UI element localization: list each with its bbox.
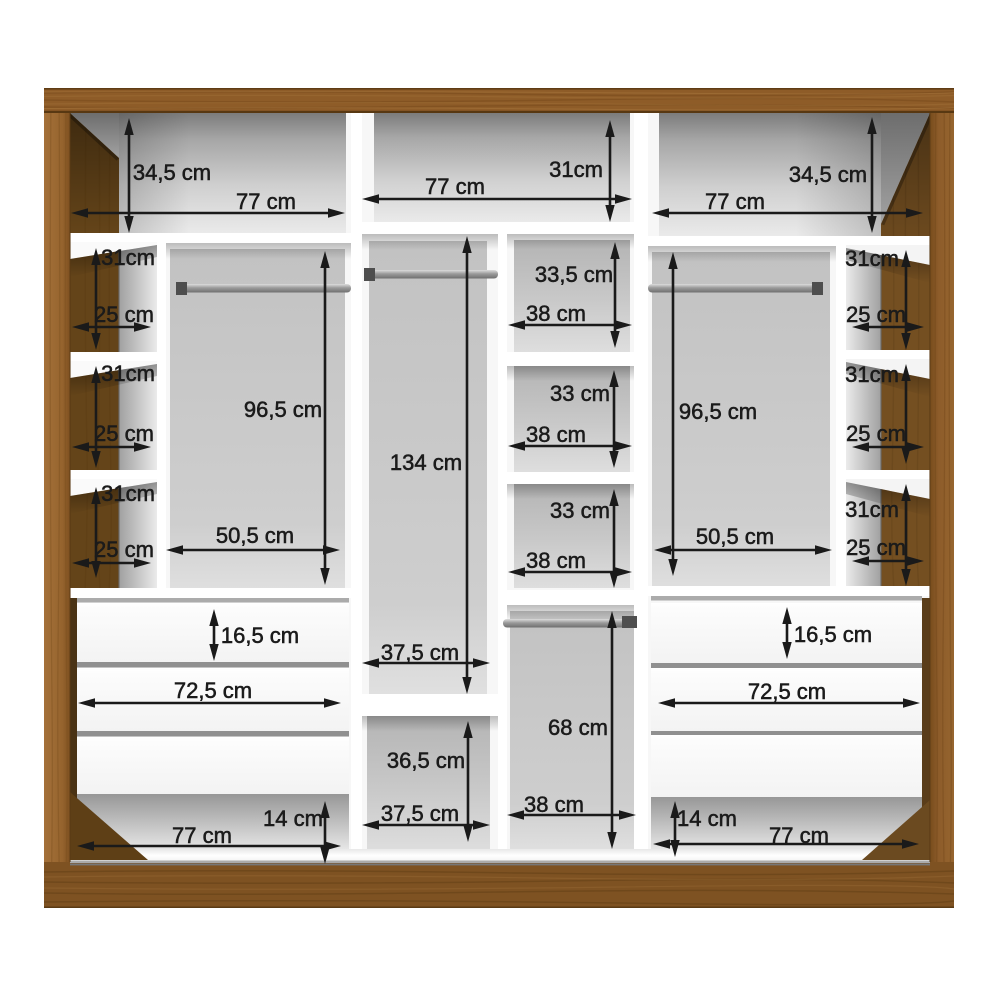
svg-text:25 cm: 25 cm <box>846 302 906 327</box>
svg-text:96,5 cm: 96,5 cm <box>244 397 322 422</box>
svg-text:25 cm: 25 cm <box>94 421 154 446</box>
svg-text:38 cm: 38 cm <box>526 301 586 326</box>
svg-text:25 cm: 25 cm <box>846 535 906 560</box>
svg-text:31cm: 31cm <box>101 361 155 386</box>
svg-text:134 cm: 134 cm <box>390 450 462 475</box>
svg-text:77 cm: 77 cm <box>705 189 765 214</box>
svg-text:34,5 cm: 34,5 cm <box>133 160 211 185</box>
svg-text:31cm: 31cm <box>101 245 155 270</box>
svg-text:34,5 cm: 34,5 cm <box>789 162 867 187</box>
svg-text:33 cm: 33 cm <box>550 381 610 406</box>
svg-text:72,5 cm: 72,5 cm <box>174 678 252 703</box>
svg-text:14 cm: 14 cm <box>677 806 737 831</box>
svg-text:37,5 cm: 37,5 cm <box>381 801 459 826</box>
svg-text:38 cm: 38 cm <box>526 422 586 447</box>
svg-text:31cm: 31cm <box>845 362 899 387</box>
svg-text:96,5 cm: 96,5 cm <box>679 399 757 424</box>
svg-text:25 cm: 25 cm <box>846 421 906 446</box>
svg-text:31cm: 31cm <box>845 246 899 271</box>
svg-text:33,5 cm: 33,5 cm <box>535 262 613 287</box>
svg-text:16,5 cm: 16,5 cm <box>221 623 299 648</box>
svg-text:25 cm: 25 cm <box>94 302 154 327</box>
svg-text:37,5 cm: 37,5 cm <box>381 640 459 665</box>
svg-text:25 cm: 25 cm <box>94 537 154 562</box>
svg-text:38 cm: 38 cm <box>526 548 586 573</box>
svg-text:16,5 cm: 16,5 cm <box>794 622 872 647</box>
svg-text:77 cm: 77 cm <box>425 174 485 199</box>
svg-text:38 cm: 38 cm <box>524 792 584 817</box>
svg-text:31cm: 31cm <box>549 157 603 182</box>
svg-text:31cm: 31cm <box>101 481 155 506</box>
svg-text:31cm: 31cm <box>845 497 899 522</box>
svg-text:50,5 cm: 50,5 cm <box>216 523 294 548</box>
svg-text:72,5 cm: 72,5 cm <box>748 679 826 704</box>
svg-text:14 cm: 14 cm <box>263 806 323 831</box>
svg-text:77 cm: 77 cm <box>172 823 232 848</box>
svg-text:77 cm: 77 cm <box>236 189 296 214</box>
svg-text:77 cm: 77 cm <box>769 823 829 848</box>
svg-text:68 cm: 68 cm <box>548 715 608 740</box>
svg-text:33 cm: 33 cm <box>550 498 610 523</box>
svg-text:50,5 cm: 50,5 cm <box>696 524 774 549</box>
svg-text:36,5 cm: 36,5 cm <box>387 748 465 773</box>
